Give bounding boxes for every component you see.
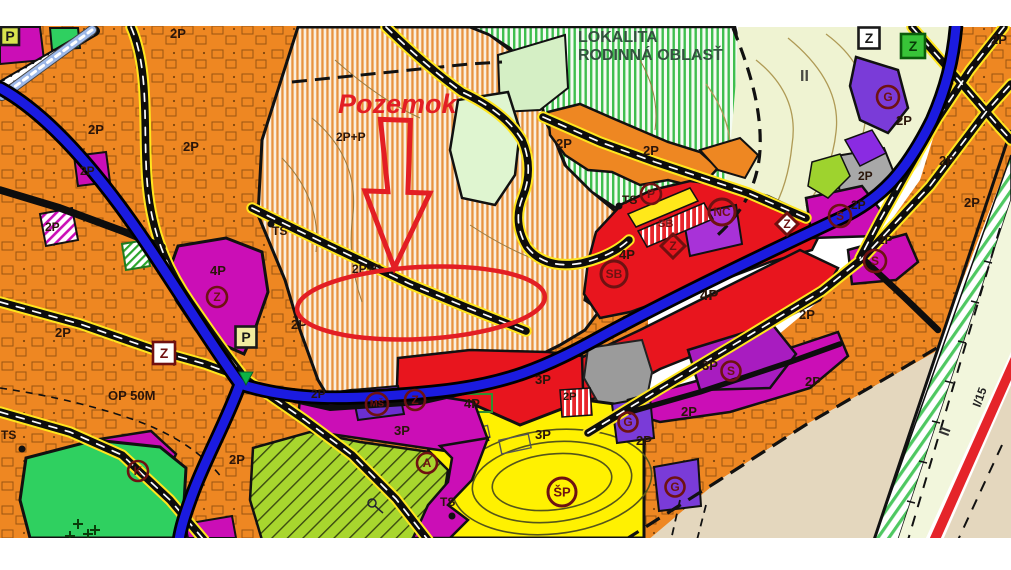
map-label: TS [272, 224, 287, 238]
margin-bottom [0, 538, 1011, 570]
symbol-square-P: P [236, 327, 257, 348]
map-label: 3P [535, 372, 551, 387]
symbol-letter: G [670, 480, 679, 494]
map-label: 2P [563, 391, 576, 403]
map-label: Pozemok [338, 89, 459, 119]
map-label: 2P [643, 143, 659, 158]
symbol-letter: S [727, 364, 735, 378]
zones-layer [0, 26, 1011, 544]
map-label: TS [1, 428, 16, 442]
map-label: 2P [229, 452, 245, 467]
map-label: 2P [991, 32, 1007, 47]
symbol-letter: SB [606, 267, 623, 281]
map-label: TS [440, 495, 455, 509]
map-label: SB [658, 218, 673, 230]
symbol-letter: P [5, 28, 14, 44]
symbol-letter: Z [783, 217, 790, 231]
symbol-square-P: P [1, 27, 19, 45]
map-label: 2P [964, 195, 980, 210]
map-label: 2P [80, 164, 95, 178]
map-label: 2P [311, 387, 326, 401]
symbol-letter: G [883, 90, 892, 104]
margin-top [0, 0, 1011, 26]
map-label: 2P+P [336, 130, 366, 144]
map-label: 2P [805, 374, 821, 389]
map-label: 4P [700, 287, 718, 304]
map-label: 2P [799, 307, 815, 322]
map-label: RODINNÁ OBLASŤ [578, 45, 723, 64]
symbol-letter: Z [213, 290, 220, 304]
dot-mark [449, 513, 456, 520]
symbol-letter: Z [160, 345, 169, 361]
map-label: 2P [939, 153, 955, 168]
symbol-letter: MŠ [370, 398, 384, 410]
map-label: 2P [878, 233, 893, 247]
map-label: 2P [896, 113, 912, 128]
map-label: 2P [858, 169, 873, 183]
symbol-letter: NC [713, 205, 731, 219]
symbol-square-Z: Z [859, 28, 880, 49]
map-label: 2P [183, 139, 199, 154]
zoning-map-svg: ZZMŠAKPNCSBSSSGGGŠPZPZZPZZ PozemokLOKALI… [0, 0, 1011, 570]
map-label: LOKALITA [578, 29, 658, 46]
map-label: OP 50M [108, 388, 155, 403]
map-label: TS [622, 193, 637, 207]
symbol-letter: S [836, 209, 844, 223]
map-label: 2P [170, 26, 186, 41]
map-label: 3P [702, 358, 718, 373]
map-label: II [800, 68, 809, 85]
symbol-letter: G [623, 415, 632, 429]
symbol-square-Z: Z [153, 342, 175, 364]
map-label: 2P [88, 122, 104, 137]
symbol-letter: Z [909, 38, 918, 54]
map-canvas[interactable]: ZZMŠAKPNCSBSSSGGGŠPZPZZPZZ PozemokLOKALI… [0, 0, 1011, 570]
dot-mark [19, 446, 26, 453]
symbol-letter: K [134, 464, 143, 478]
symbol-letter: S [871, 254, 879, 268]
symbol-square-Z: Z [901, 34, 925, 58]
symbol-letter: A [423, 456, 432, 470]
map-label: 4P [210, 263, 226, 278]
map-label: 4P [619, 247, 635, 262]
symbol-letter: Z [411, 393, 418, 407]
symbol-letter: ŠP [553, 485, 571, 500]
symbol-letter: Z [865, 30, 874, 46]
map-label: 2P [45, 220, 60, 234]
map-label: 2P [636, 433, 652, 448]
symbol-letter: P [647, 187, 655, 201]
map-label: 2P [556, 136, 572, 151]
map-label: 3P [535, 427, 551, 442]
symbol-letter: Z [669, 239, 676, 253]
map-label: 2P [681, 404, 697, 419]
map-label: 2P [851, 198, 866, 212]
map-label: 4P [464, 396, 480, 411]
symbol-letter: P [241, 329, 250, 345]
map-label: 3P [394, 423, 410, 438]
map-label: 2P [55, 325, 71, 340]
